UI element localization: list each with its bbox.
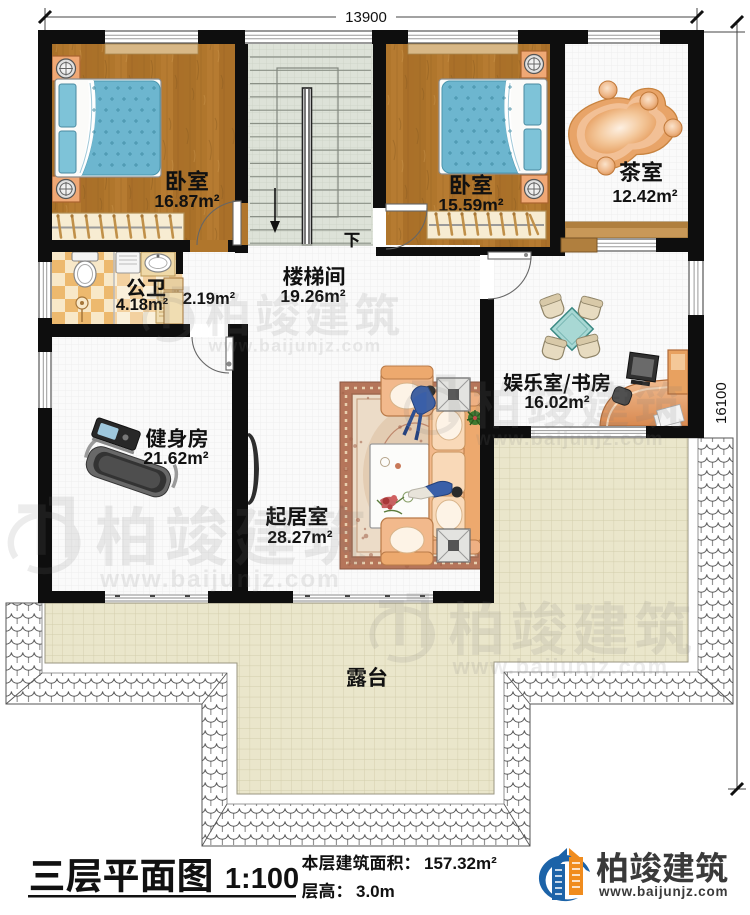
svg-text:3.0m: 3.0m: [356, 882, 395, 901]
svg-text:21.62m²: 21.62m²: [143, 448, 208, 468]
svg-text:16.87m²: 16.87m²: [154, 191, 219, 211]
svg-text:157.32m²: 157.32m²: [424, 854, 497, 873]
svg-text:12.42m²: 12.42m²: [612, 186, 677, 206]
svg-text:16100: 16100: [713, 382, 730, 424]
svg-text:1:100: 1:100: [225, 863, 299, 895]
svg-text:www.baijunjz.com: www.baijunjz.com: [598, 884, 728, 899]
svg-text:13900: 13900: [345, 9, 387, 26]
